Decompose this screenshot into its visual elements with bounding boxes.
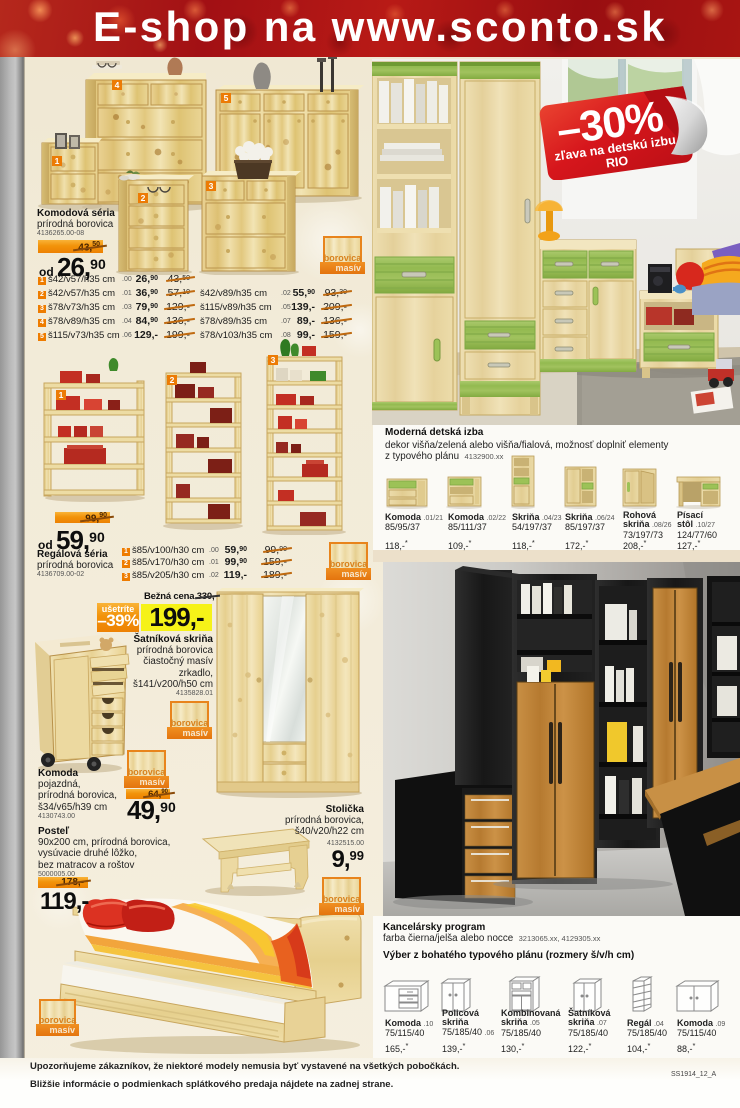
svg-text:3: 3 xyxy=(271,355,276,365)
svg-text:3: 3 xyxy=(209,181,214,191)
svg-text:4: 4 xyxy=(115,80,120,90)
svg-text:1: 1 xyxy=(55,156,60,166)
svg-text:2: 2 xyxy=(170,375,175,385)
svg-text:2: 2 xyxy=(141,193,146,203)
svg-text:1: 1 xyxy=(59,390,64,400)
svg-text:5: 5 xyxy=(224,93,229,103)
